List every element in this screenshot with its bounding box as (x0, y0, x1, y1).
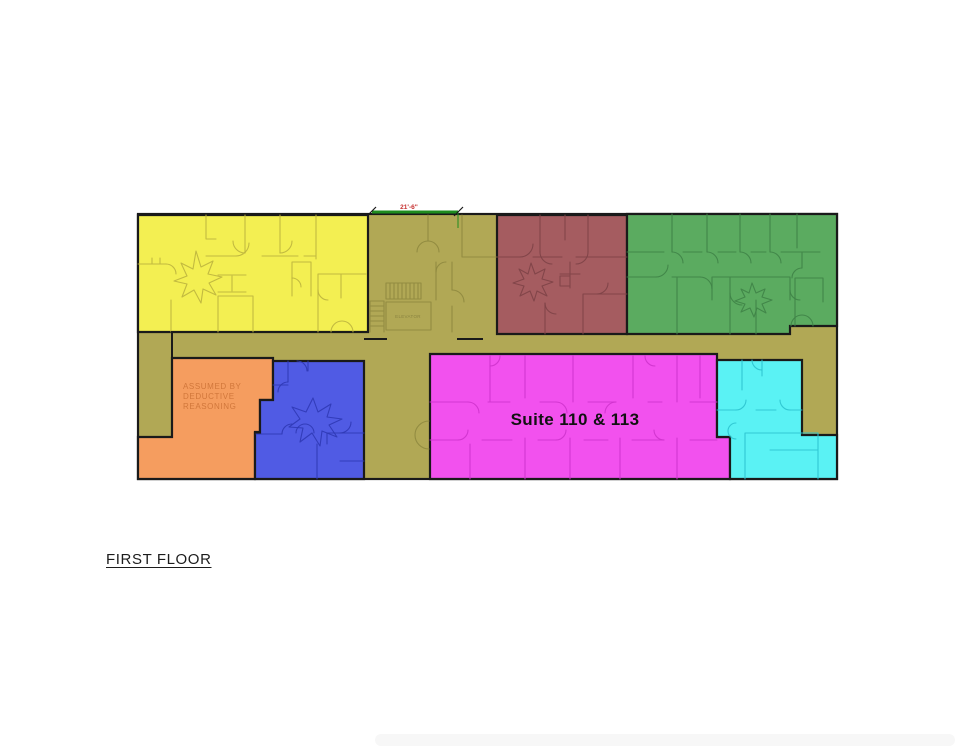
assumed-note-line-3: REASONING (183, 402, 236, 411)
floor-plan-canvas: 21'-6" Suite 110 & 113 ASSUMED BY DEDUCT… (0, 0, 960, 744)
suite-110-113-label: Suite 110 & 113 (511, 410, 640, 429)
assumed-note-line-1: ASSUMED BY (183, 382, 242, 391)
elevator-label: ELEVATOR (395, 314, 421, 319)
dimension-text: 21'-6" (400, 204, 418, 211)
assumed-note-line-2: DEDUCTIVE (183, 392, 235, 401)
bottom-shadow (375, 734, 955, 746)
floor-title: FIRST FLOOR (106, 551, 212, 568)
